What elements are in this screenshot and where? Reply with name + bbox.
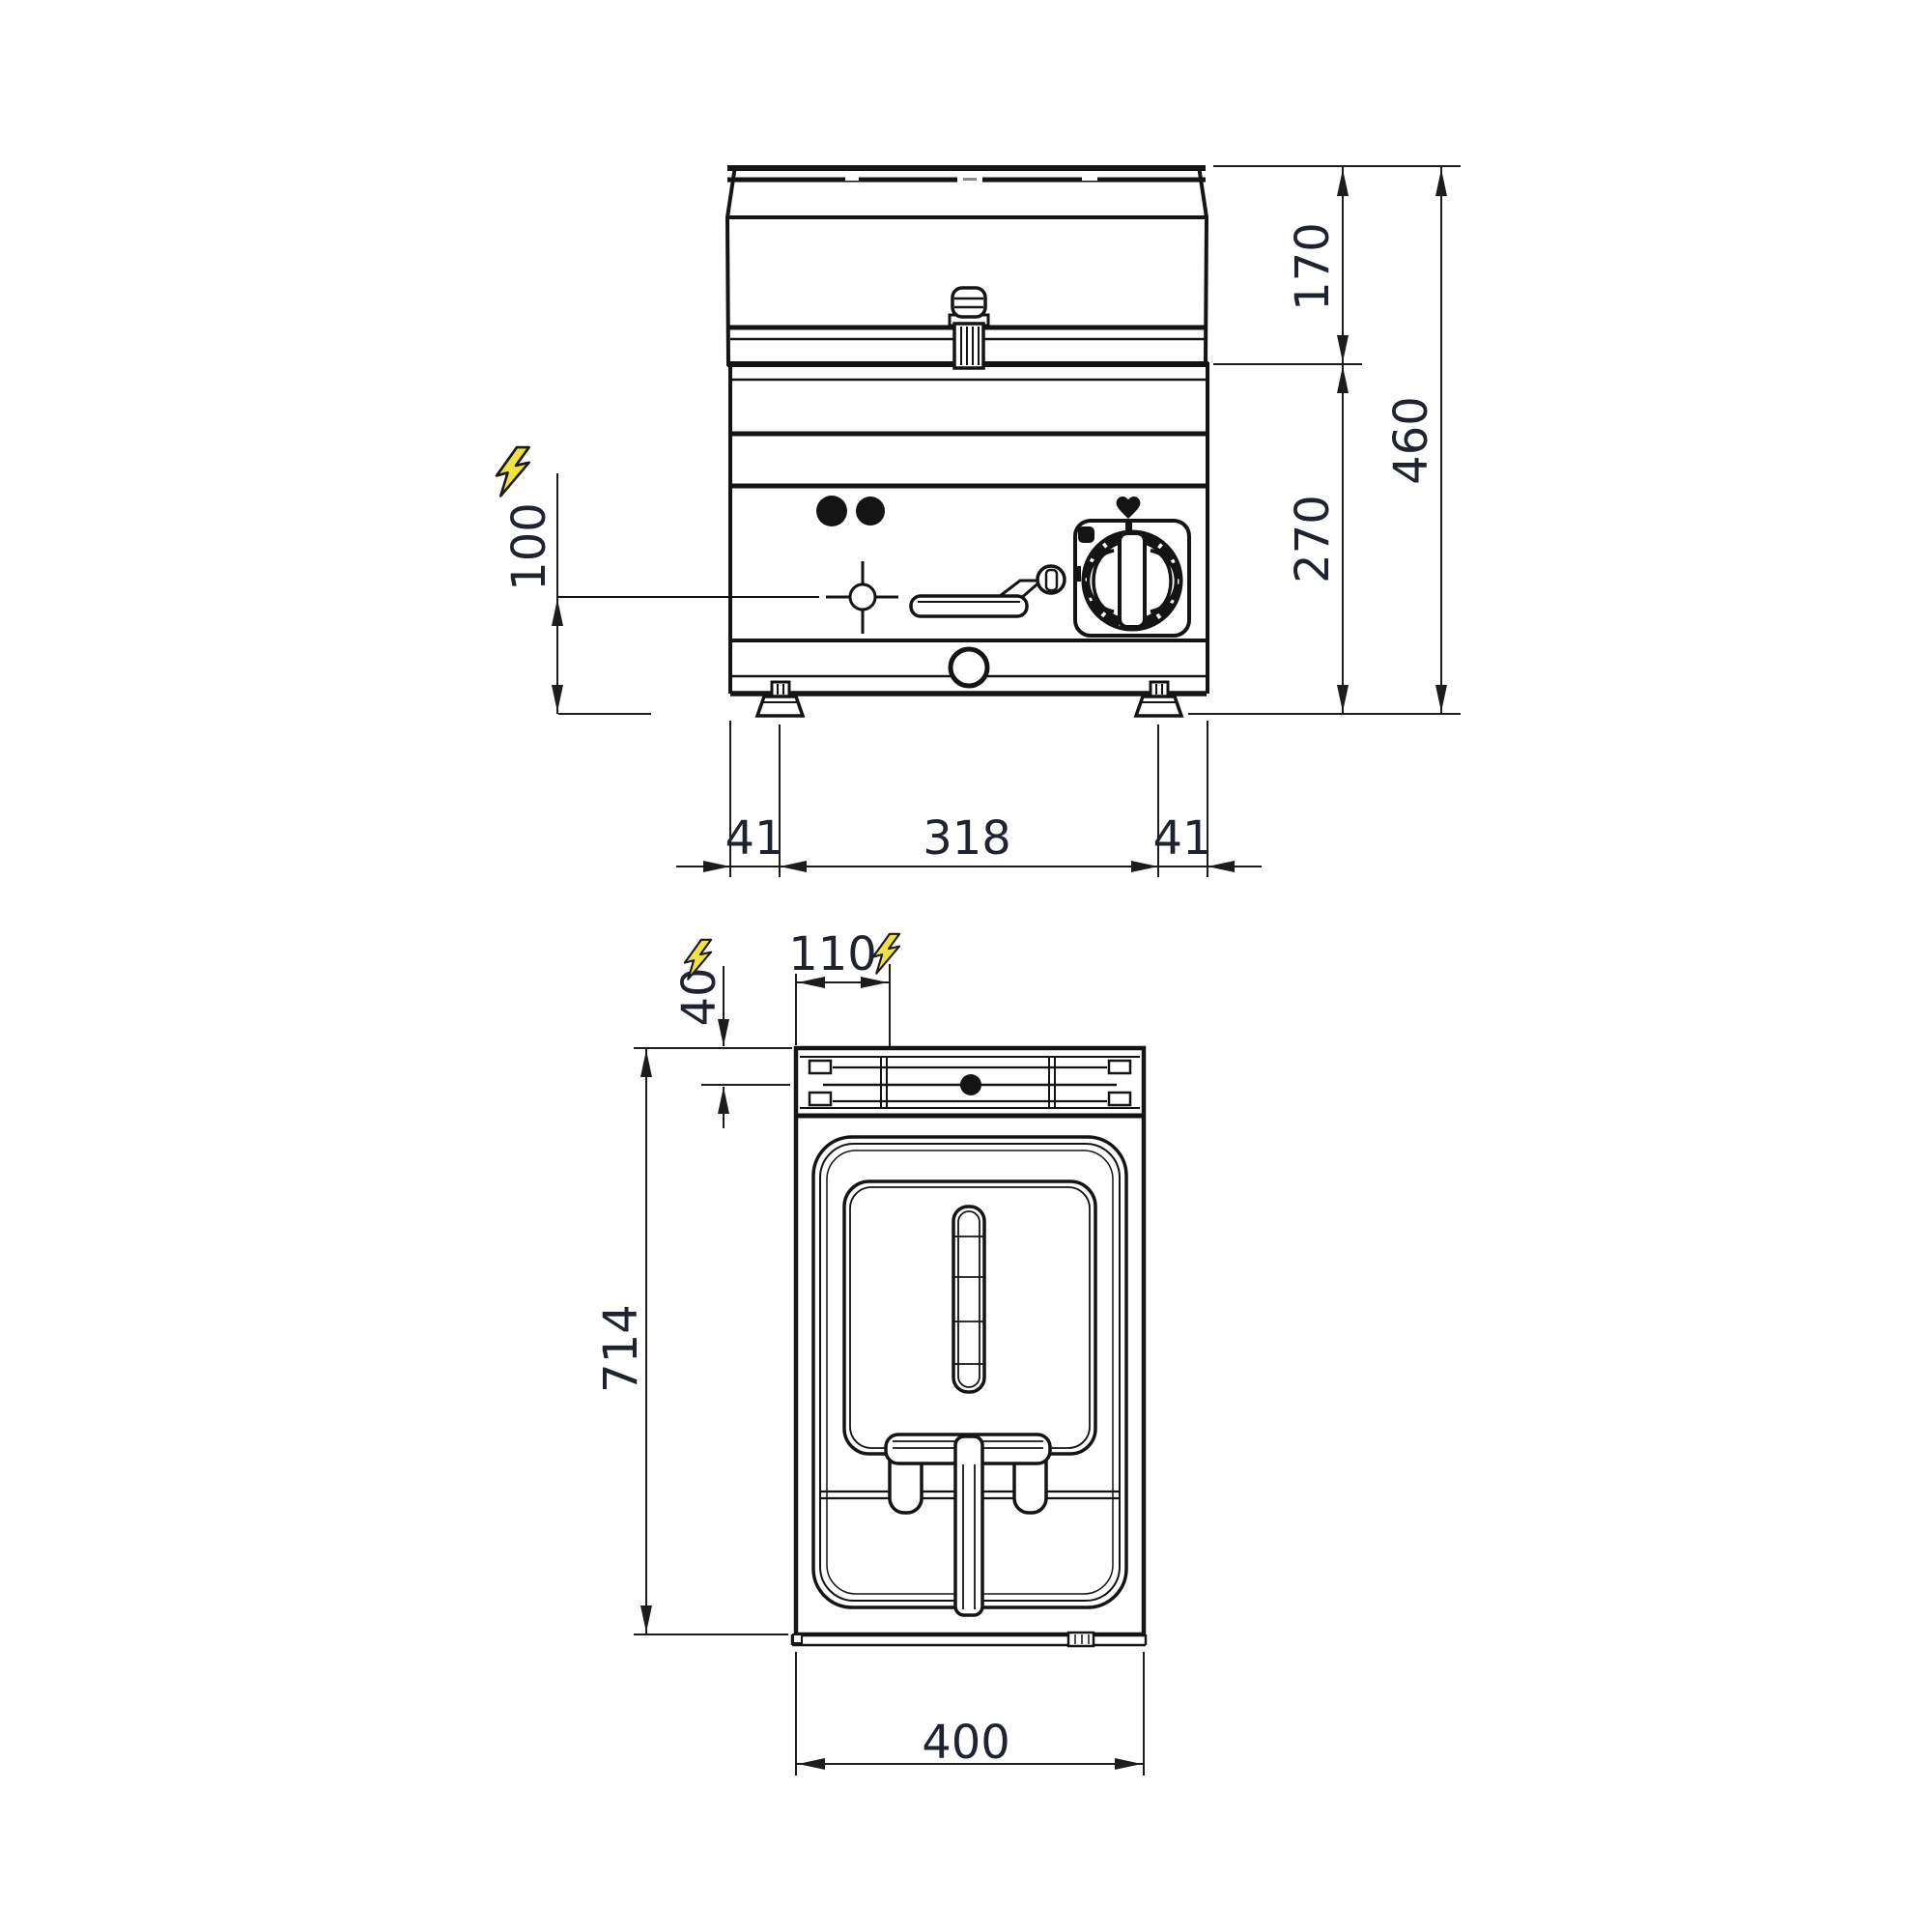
lid-handle [950,288,988,368]
indicator-light-1 [816,496,847,526]
dim-foot-inset-left: 41 [724,811,783,866]
electric-connection-dot [960,1074,981,1095]
knob-pointer-icon [1117,497,1141,519]
plan-view [792,1048,1146,1646]
plan-dimensions: 40 110 714 400 [594,927,1144,1776]
indicator-lights [816,496,885,526]
knob-grip [1120,533,1145,627]
front-left-edge [727,166,735,694]
front-view [558,166,1208,716]
dim-body-height: 270 [1286,495,1340,583]
dim-foot-spacing: 318 [923,811,1011,866]
terminal-box [1068,1633,1094,1646]
front-right-edge [1199,166,1207,694]
indicator-light-2 [856,497,885,526]
dim-lid-height: 170 [1286,222,1340,311]
back-rail [796,1057,1144,1116]
dim-back-offset: 40 [672,967,726,1026]
electric-bolt-icon [497,447,529,496]
dim-total-height: 460 [1384,396,1438,485]
dim-electric-x: 110 [788,927,877,981]
dim-foot-inset-right: 41 [1152,811,1211,866]
dim-width: 400 [922,1716,1010,1770]
lid-panel [844,1181,1095,1454]
drain-valve-lever [911,566,1065,616]
front-dimensions: 170 270 460 100 41 318 41 [497,166,1461,877]
dim-electric-height: 100 [502,502,556,591]
drain-plug [951,649,987,686]
drawing-canvas: 170 270 460 100 41 318 41 [0,0,1932,1932]
thermostat-knob [1073,497,1189,636]
dim-depth: 714 [594,1304,648,1393]
technical-drawing: 170 270 460 100 41 318 41 [0,0,1932,1932]
electric-bolt-icon [873,934,899,974]
basket-handle [820,1435,1120,1615]
